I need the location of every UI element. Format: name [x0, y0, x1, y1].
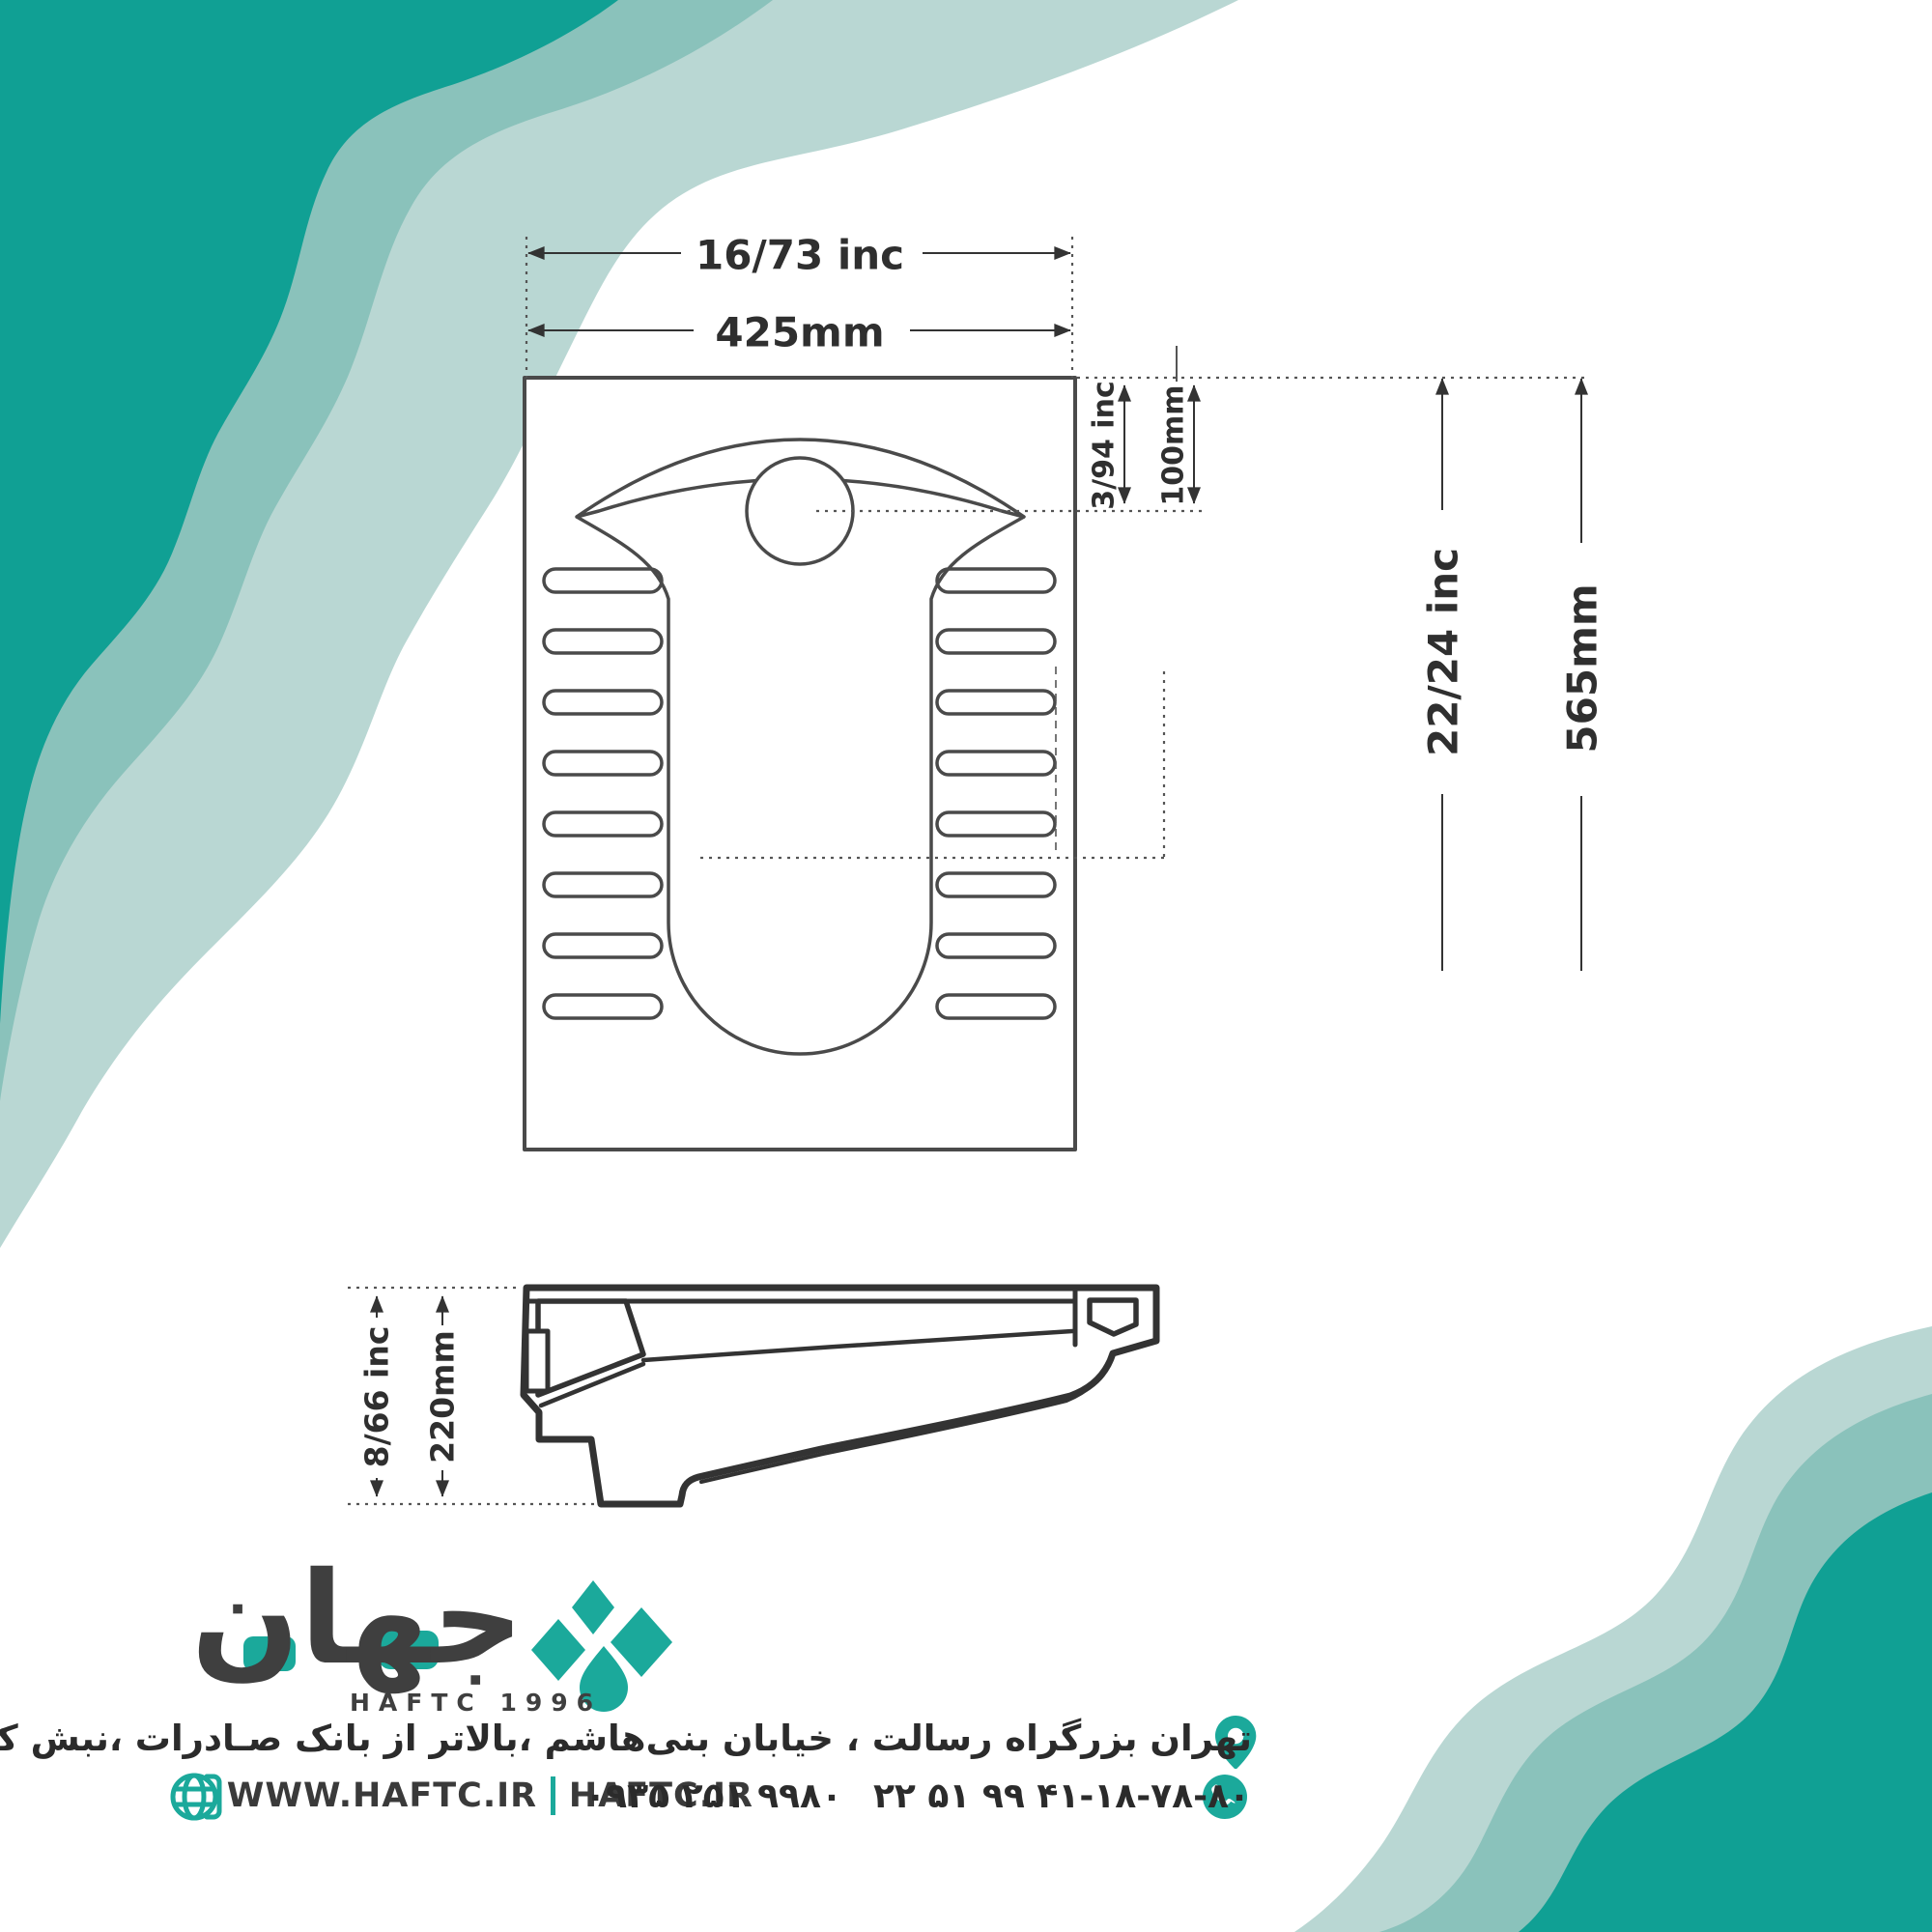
- dim-offset-mm: 100mm: [1157, 384, 1191, 505]
- dim-height-inch: 8/66 inc: [358, 1326, 396, 1468]
- flush-inlet-circle: [747, 458, 853, 564]
- phone-row: ۰۹۳۵ ۲۵۱ ۹۹۸۰ ۲۲ ۵۱ ۹۹ ۴۱-۱۸-۷۸-۸۰: [599, 1766, 1265, 1826]
- emblem-small-diamond: [572, 1580, 614, 1634]
- dim-offset-inch: 3/94 inc: [1088, 381, 1122, 509]
- dim-depth-inch: 22/24 inc: [1420, 548, 1467, 756]
- dim-width-inch: 16/73 inc: [696, 232, 904, 279]
- address-text: تهران بزرگراه رسالت ، خیابان بنی‌هاشم ،ب…: [0, 1718, 1252, 1759]
- address-row: تهران بزرگراه رسالت ، خیابان بنی‌هاشم ،ب…: [135, 1710, 1265, 1766]
- dim-height-mm: 220mm: [424, 1330, 462, 1463]
- side-view-drawing: [524, 1288, 1156, 1504]
- brand-wordmark: جهان: [185, 1551, 529, 1696]
- dim-width-mm: 425mm: [715, 309, 884, 356]
- phone-mobile-number[interactable]: ۰۹۳۵ ۲۵۱ ۹۹۸۰: [584, 1776, 842, 1816]
- bottom-right-wave: [1294, 1326, 1932, 1932]
- trap-left-channel: [526, 1331, 548, 1391]
- website-separator-bar: [551, 1776, 555, 1815]
- globe-icon-spacer: [155, 1769, 213, 1823]
- dim-depth-mm: 565mm: [1559, 583, 1606, 753]
- poster-page: 16/73 inc 425mm 3/94 inc 100mm 22/24 inc…: [0, 0, 1932, 1932]
- website-www[interactable]: WWW.HAFTC.IR: [227, 1776, 537, 1815]
- emblem-left-diamond: [531, 1619, 585, 1681]
- phone-landline-number[interactable]: ۲۲ ۵۱ ۹۹ ۴۱-۱۸-۷۸-۸۰: [873, 1776, 1250, 1816]
